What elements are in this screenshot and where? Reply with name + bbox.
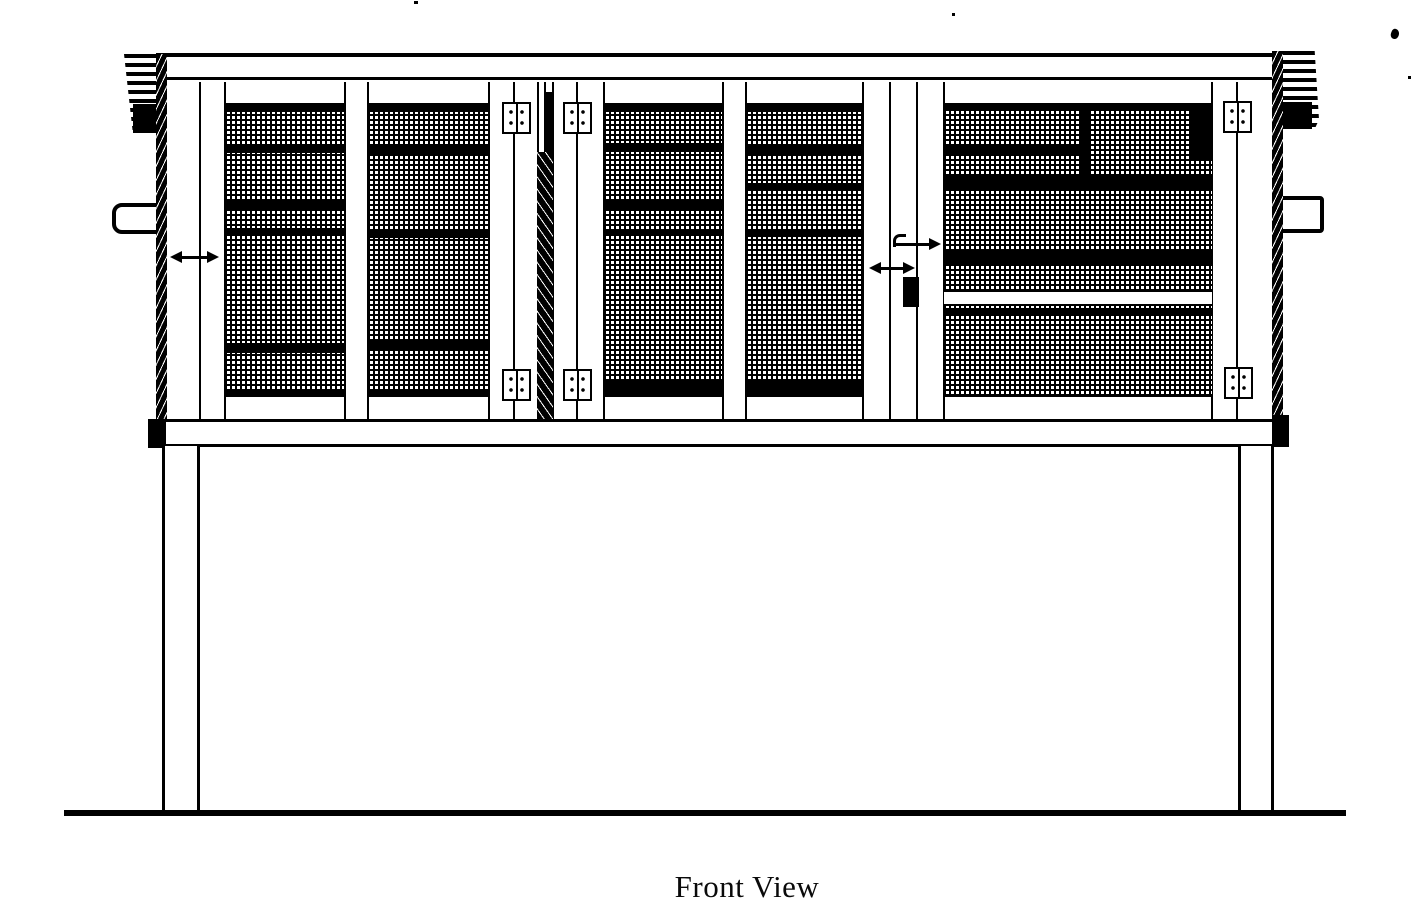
mesh-dark-band [746, 146, 862, 154]
arrow-head [869, 262, 881, 274]
top-rail [156, 53, 1282, 80]
corner-post-right [1272, 51, 1283, 419]
hinge-icon [502, 369, 531, 401]
swing-arrow-icon [870, 261, 914, 275]
hinge-icon [1224, 367, 1253, 399]
mesh-dark-band [604, 381, 722, 397]
ink-speck [1408, 76, 1411, 79]
cleat-left [112, 203, 160, 234]
mesh-dark-band [368, 146, 489, 155]
mesh-panel-1 [224, 103, 345, 397]
mesh-dark-band [368, 229, 489, 238]
swing-arrow-icon [171, 250, 218, 264]
mesh-panel-5 [943, 103, 1213, 397]
mesh-vertical-divider [1079, 104, 1091, 183]
mesh-dark-band [225, 228, 344, 234]
board-strip [944, 289, 1212, 306]
mesh-dark-band [225, 343, 344, 353]
latch-block [903, 277, 919, 307]
door-gap-upper-fill [546, 92, 553, 152]
mesh-dark-band [225, 144, 344, 153]
arrow-hook [893, 234, 906, 247]
mesh-dark-band [944, 146, 1079, 156]
mesh-dark-band [944, 308, 1212, 314]
mesh-dark-band [225, 390, 344, 397]
door-gap-lower-fill [537, 152, 553, 420]
mesh-dark-band [746, 183, 862, 190]
mesh-dark-band [604, 104, 722, 112]
mesh-dark-band [746, 381, 862, 397]
drawing-canvas: Front View [0, 0, 1416, 908]
corner-post-left [156, 54, 167, 422]
leg-left [162, 446, 200, 812]
hinge-icon [563, 369, 592, 401]
hinge-icon [502, 102, 531, 134]
arrow-head [903, 262, 915, 274]
mesh-dark-band [604, 229, 722, 236]
hinge-icon [1223, 101, 1252, 133]
mesh-dark-band [944, 104, 1212, 111]
roof-solid-right [1283, 102, 1312, 129]
caption: Front View [637, 869, 857, 905]
ink-speck [1390, 28, 1401, 40]
ground-line [64, 810, 1346, 816]
mesh-dark-band [944, 176, 1212, 189]
swing-arrow-icon [893, 237, 940, 251]
mesh-dark-band [368, 339, 489, 349]
mesh-panel-4 [745, 103, 863, 397]
mesh-dark-band [368, 389, 489, 397]
cleat-right [1279, 196, 1324, 233]
rail-end-block-right [1272, 415, 1289, 446]
rail-end-block-left [148, 421, 166, 448]
mesh-panel-2 [367, 103, 490, 397]
mesh-dark-band [944, 249, 1212, 266]
roof-overhang-left-icon [124, 54, 158, 133]
mesh-panel-3 [603, 103, 723, 397]
frame-vline [889, 82, 891, 420]
bottom-rail [148, 419, 1289, 447]
mesh-dark-band [225, 201, 344, 211]
mesh-dark-band [368, 104, 489, 112]
arrow-head [207, 251, 219, 263]
leg-right [1238, 446, 1274, 812]
ink-speck [952, 13, 955, 16]
hinge-icon [563, 102, 592, 134]
mesh-dark-band [746, 231, 862, 237]
mesh-dark-band [1191, 104, 1213, 161]
roof-solid-left [133, 104, 158, 133]
mesh-dark-band [225, 104, 344, 112]
roof-overhang-right-icon [1283, 51, 1319, 129]
mesh-dark-band [746, 104, 862, 112]
ink-speck [414, 1, 418, 4]
arrow-head [929, 238, 941, 250]
mesh-dark-band [604, 143, 722, 152]
frame-vline [916, 82, 918, 420]
mesh-dark-band [604, 201, 722, 209]
arrow-head [170, 251, 182, 263]
